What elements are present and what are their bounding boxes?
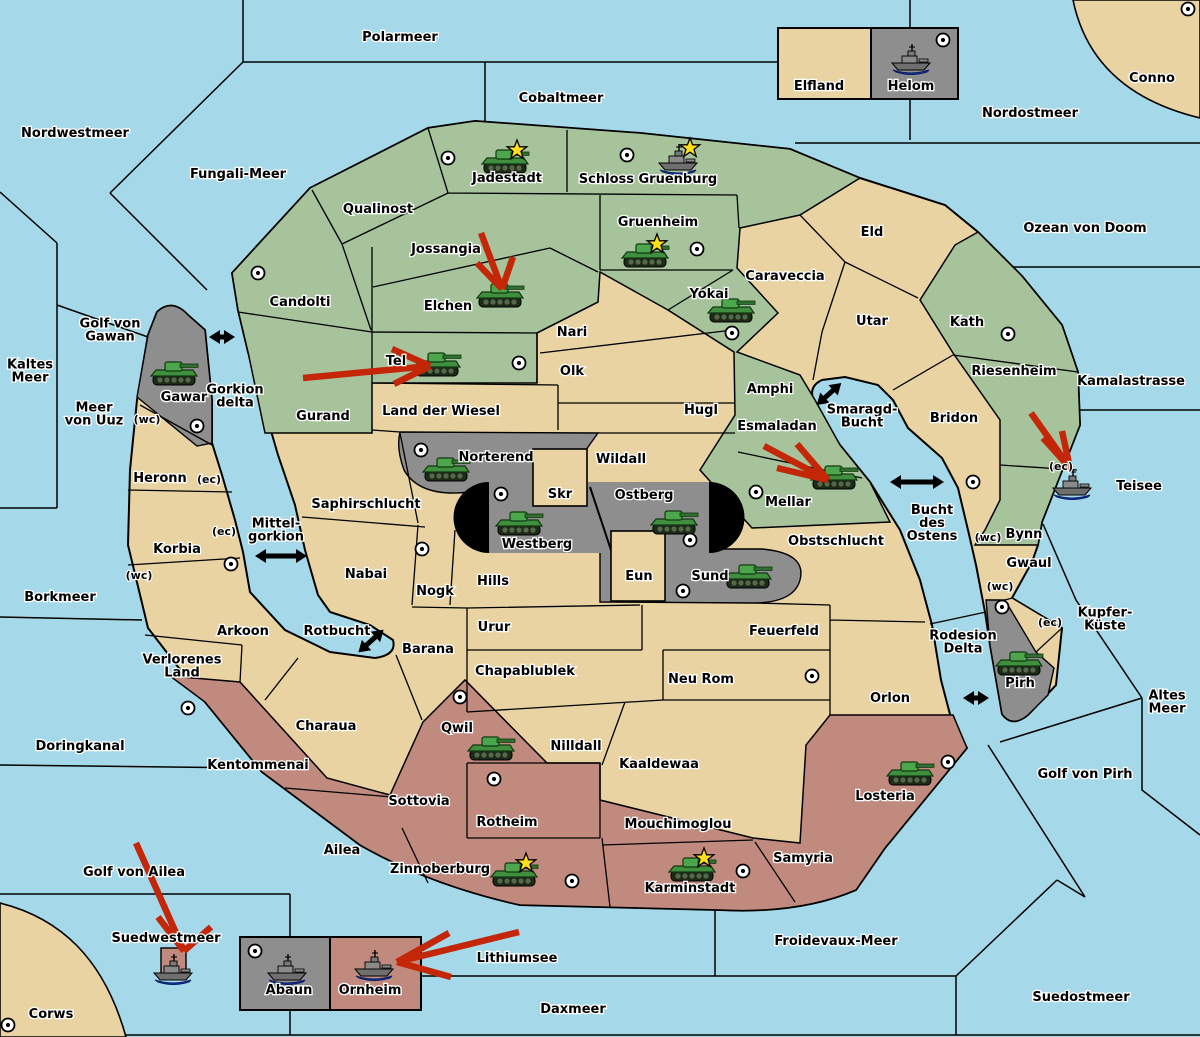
province-label-riesenheim: Riesenheim (971, 364, 1056, 379)
sea-label-golf-von-ailea: Golf von Ailea (83, 865, 185, 880)
sea-label-borkmeer: Borkmeer (24, 590, 96, 605)
province-label-qwil: Qwil (441, 721, 473, 736)
province-label-mouchimoglou: Mouchimoglou (625, 817, 732, 832)
region-eun[interactable] (611, 531, 665, 601)
sea-label-kupfer-k-ste: Kupfer-Küste (1078, 606, 1133, 634)
province-label-jossangia: Jossangia (410, 242, 481, 257)
supply-center-icon (937, 34, 950, 47)
coast-marker-wc: (wc) (134, 413, 161, 426)
sea-label-suedostmeer: Suedostmeer (1032, 990, 1130, 1005)
province-label-saphirschlucht: Saphirschlucht (311, 497, 420, 512)
supply-center-icon (488, 773, 501, 786)
province-label-gurand: Gurand (296, 409, 350, 424)
supply-center-icon (691, 243, 704, 256)
supply-center-icon (750, 486, 763, 499)
province-label-eun: Eun (625, 569, 652, 584)
province-label-rotheim: Rotheim (476, 815, 537, 830)
province-label-sund: Sund (691, 569, 728, 584)
province-label-ostberg: Ostberg (615, 488, 674, 503)
province-label-nilldall: Nilldall (550, 739, 601, 754)
province-label-kentommenai: Kentommenai (207, 758, 308, 773)
sea-label-suedwestmeer: Suedwestmeer (111, 931, 221, 946)
province-label-charaua: Charaua (296, 719, 357, 734)
province-label-olk: Olk (560, 364, 585, 379)
supply-center-icon (942, 756, 955, 769)
coast-marker-ec: (ec) (197, 473, 221, 486)
supply-center-icon (182, 702, 195, 715)
coast-marker-wc: (wc) (975, 531, 1002, 544)
province-label-utar: Utar (856, 314, 889, 329)
province-label-conno: Conno (1129, 71, 1175, 86)
supply-center-icon (249, 945, 262, 958)
supply-center-icon (415, 444, 428, 457)
province-label-tel: Tel (386, 354, 406, 369)
province-label-abaun: Abaun (266, 983, 313, 998)
province-label-kath: Kath (950, 315, 984, 330)
supply-center-icon (225, 558, 238, 571)
province-label-arkoon: Arkoon (217, 624, 269, 639)
sea-label-ozean-von-doom: Ozean von Doom (1023, 221, 1146, 236)
province-label-nogk: Nogk (416, 584, 454, 599)
province-label-bridon: Bridon (930, 411, 978, 426)
box-abaun-ornheim (240, 937, 421, 1010)
coast-marker-ec: (ec) (1038, 616, 1062, 629)
supply-center-icon (416, 543, 429, 556)
province-label-neu-rom: Neu Rom (668, 672, 734, 687)
province-label-ornheim: Ornheim (339, 983, 402, 998)
sea-label-golf-von-pirh: Golf von Pirh (1037, 767, 1132, 782)
province-label-qualinost: Qualinost (343, 202, 413, 217)
sea-label-rotbucht: Rotbucht (304, 624, 371, 639)
sea-label-doringkanal: Doringkanal (35, 739, 124, 754)
province-label-zinnoberburg: Zinnoberburg (390, 862, 490, 877)
supply-center-icon (806, 670, 819, 683)
province-label-hills: Hills (477, 574, 509, 589)
coast-marker-wc: (wc) (126, 569, 153, 582)
province-label-jadestadt: Jadestadt (471, 171, 542, 186)
province-label-feuerfeld: Feuerfeld (749, 624, 819, 639)
coast-marker-ec: (ec) (212, 525, 236, 538)
supply-center-icon (191, 420, 204, 433)
province-label-orlon: Orlon (870, 691, 910, 706)
coast-marker-wc: (wc) (987, 580, 1014, 593)
province-label-esmaladan: Esmaladan (737, 419, 817, 434)
sea-label-golf-von-gawan: Golf vonGawan (80, 317, 141, 345)
sea-label-fungali-meer: Fungali-Meer (190, 167, 287, 182)
province-label-caraveccia: Caraveccia (745, 269, 824, 284)
province-label-norterend: Norterend (458, 450, 533, 465)
province-label-samyria: Samyria (773, 851, 833, 866)
sea-label-nordwestmeer: Nordwestmeer (21, 126, 129, 141)
coast-marker-ec: (ec) (1049, 460, 1073, 473)
province-label-elchen: Elchen (424, 299, 472, 314)
province-label-gwaul: Gwaul (1006, 556, 1051, 571)
supply-center-icon (442, 152, 455, 165)
supply-center-icon (1182, 3, 1195, 16)
province-label-gawar: Gawar (161, 390, 208, 405)
supply-center-icon (621, 149, 634, 162)
province-label-heronn: Heronn (133, 471, 187, 486)
province-label-land-der-wiesel: Land der Wiesel (382, 404, 500, 419)
supply-center-icon (726, 327, 739, 340)
province-label-nari: Nari (557, 325, 588, 340)
sea-label-nordostmeer: Nordostmeer (982, 106, 1079, 121)
sea-label-lithiumsee: Lithiumsee (477, 951, 558, 966)
sea-label-mittel-gorkion: Mittel-gorkion (248, 517, 304, 545)
province-label-sottovia: Sottovia (388, 794, 449, 809)
sea-label-teisee: Teisee (1116, 479, 1162, 494)
sea-label-polarmeer: Polarmeer (362, 30, 438, 45)
province-label-elfland: Elfland (794, 79, 844, 94)
game-map: PolarmeerCobaltmeerNordostmeerNordwestme… (0, 0, 1200, 1037)
province-label-chapablublek: Chapablublek (475, 664, 575, 679)
province-label-mellar: Mellar (765, 495, 811, 510)
supply-center-icon (684, 534, 697, 547)
province-label-obstschlucht: Obstschlucht (788, 534, 884, 549)
province-label-losteria: Losteria (855, 789, 915, 804)
sea-label-kamalastrasse: Kamalastrasse (1077, 374, 1185, 389)
province-label-gruenheim: Gruenheim (618, 215, 698, 230)
supply-center-icon (677, 585, 690, 598)
province-label-barana: Barana (402, 642, 454, 657)
province-label-urur: Urur (478, 620, 511, 635)
province-label-ailea: Ailea (324, 843, 361, 858)
province-label-karminstadt: Karminstadt (645, 881, 736, 896)
sea-label-froidevaux-meer: Froidevaux-Meer (774, 934, 898, 949)
province-label-yokai: Yokai (688, 287, 728, 302)
supply-center-icon (566, 875, 579, 888)
province-label-amphi: Amphi (747, 382, 794, 397)
supply-center-icon (252, 267, 265, 280)
supply-center-icon (513, 357, 526, 370)
province-label-bynn: Bynn (1006, 527, 1043, 542)
province-label-hugl: Hugl (684, 403, 718, 418)
supply-center-icon (2, 1019, 15, 1032)
supply-center-icon (737, 865, 750, 878)
province-label-helom: Helom (888, 79, 935, 94)
province-label-kaaldewaa: Kaaldewaa (619, 757, 699, 772)
supply-center-icon (454, 691, 467, 704)
province-label-schloss-gruenburg: Schloss Gruenburg (579, 172, 717, 187)
province-label-eld: Eld (861, 225, 884, 240)
province-label-corws: Corws (29, 1007, 74, 1022)
province-label-skr: Skr (548, 487, 573, 502)
supply-center-icon (967, 476, 980, 489)
sea-label-kaltes-meer: KaltesMeer (7, 358, 53, 386)
province-label-westberg: Westberg (502, 537, 572, 552)
province-label-nabai: Nabai (345, 567, 387, 582)
province-label-candolti: Candolti (270, 295, 331, 310)
province-label-wildall: Wildall (596, 452, 646, 467)
sea-label-daxmeer: Daxmeer (540, 1002, 606, 1017)
province-label-pirh: Pirh (1005, 676, 1035, 691)
province-label-korbia: Korbia (153, 542, 201, 557)
supply-center-icon (495, 488, 508, 501)
supply-center-icon (996, 601, 1009, 614)
supply-center-icon (1002, 328, 1015, 341)
sea-label-altes-meer: AltesMeer (1148, 689, 1186, 717)
sea-label-cobaltmeer: Cobaltmeer (519, 91, 604, 106)
